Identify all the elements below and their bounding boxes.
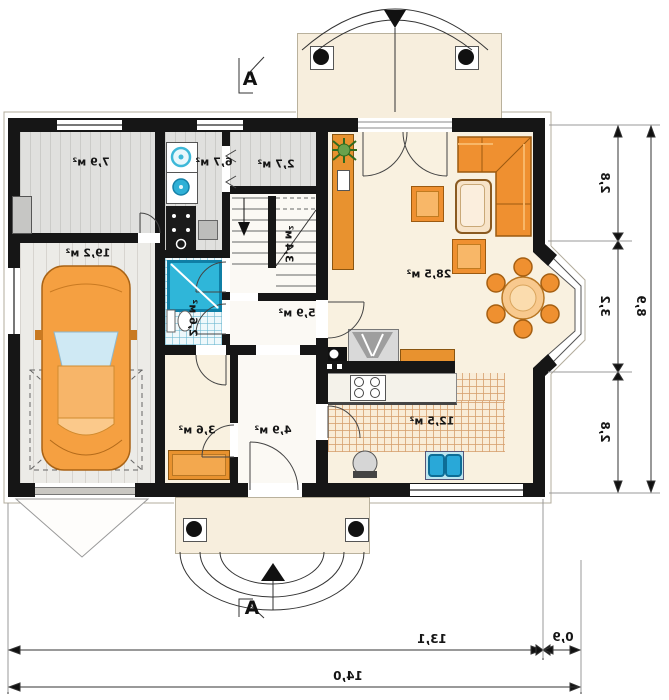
- toilet-tank: [167, 310, 175, 332]
- stairs-icon: [232, 198, 316, 286]
- back-arrow-icon: [261, 563, 285, 581]
- wall-socket: [337, 364, 342, 369]
- counter-sink-circle: [330, 350, 339, 359]
- room-label-hallway: 4,9 м²: [254, 424, 291, 437]
- room-label-vestibule: 7,9 м²: [72, 156, 109, 169]
- section-mark-bottom: A: [245, 597, 260, 619]
- entry-arrow-icon: [384, 10, 406, 28]
- room-label-living: 28,5 м²: [407, 268, 452, 281]
- fridge-base: [353, 471, 377, 478]
- plan-linework: [0, 0, 669, 700]
- stairs-down-arrow-icon: [238, 222, 250, 236]
- boiler-gauge: [177, 240, 186, 249]
- driveway: [16, 499, 148, 557]
- french-door-sill: [358, 122, 452, 128]
- room-label-hall: 5,9 м²: [278, 307, 315, 320]
- section-marker-lines: [239, 57, 264, 618]
- washer-dot: [179, 155, 184, 160]
- utility-sink-drain: [179, 185, 183, 189]
- sofa-icon: [458, 137, 531, 236]
- column-base: [186, 521, 202, 537]
- column-base: [313, 49, 329, 65]
- room-label-storage: 3,6 м²: [178, 424, 215, 437]
- section-mark-top: A: [243, 68, 258, 90]
- plant-icon: [332, 138, 357, 163]
- dim-right-segment-3: 2,8: [598, 421, 612, 442]
- column-base: [348, 521, 364, 537]
- room-label-wc: 2,6 м²: [187, 299, 200, 336]
- room-label-stairs: 3,4 м²: [283, 225, 296, 262]
- wall-socket: [327, 364, 332, 369]
- room-label-closet: 2,7 м²: [257, 158, 294, 171]
- dim-right-segment-1: 2,8: [598, 172, 612, 193]
- room-label-garage: 19,2 м²: [66, 247, 111, 260]
- room-label-kitchen: 12,5 м²: [410, 415, 455, 428]
- boiler-vents: [172, 214, 190, 232]
- dim-right-total: 8,9: [634, 295, 648, 316]
- column-base: [458, 49, 474, 65]
- car-icon: [35, 266, 137, 470]
- dim-right-segment-2: 3,2: [598, 295, 612, 316]
- stove-burners: [355, 378, 380, 398]
- floor-plan: 7,9 м² 19,2 м² 6,7 м² 2,7 м² 3,4 м² 5,9 …: [0, 0, 669, 700]
- hood-funnel: [352, 332, 393, 358]
- dim-bottom-segment-1: 13,1: [417, 632, 447, 646]
- dim-bottom-total: 14,0: [333, 669, 363, 683]
- dim-bottom-segment-2: 0,9: [552, 630, 573, 644]
- room-label-utility: 6,7 м²: [195, 156, 232, 169]
